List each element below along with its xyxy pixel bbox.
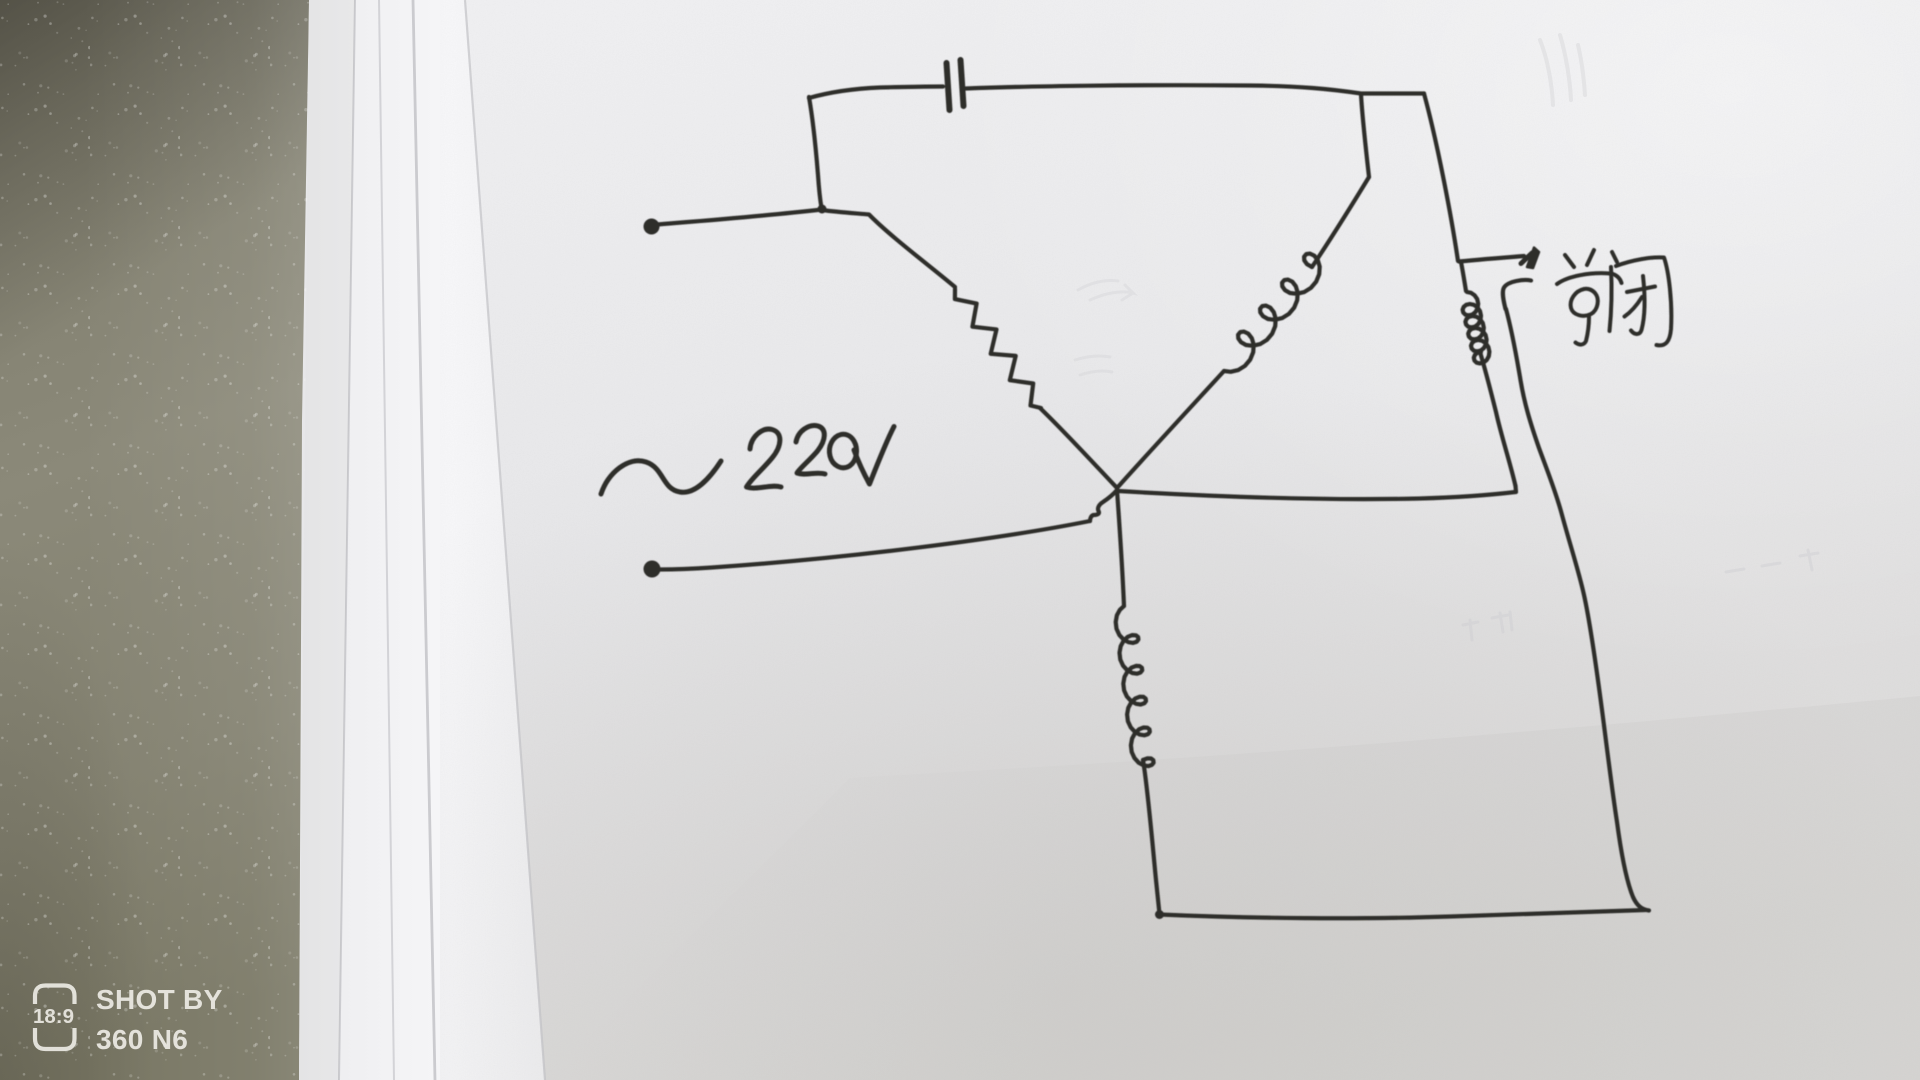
svg-text:18:9: 18:9 [33,1005,74,1028]
svg-text:SHOT BY: SHOT BY [96,984,223,1015]
svg-text:360 N6: 360 N6 [96,1024,188,1055]
